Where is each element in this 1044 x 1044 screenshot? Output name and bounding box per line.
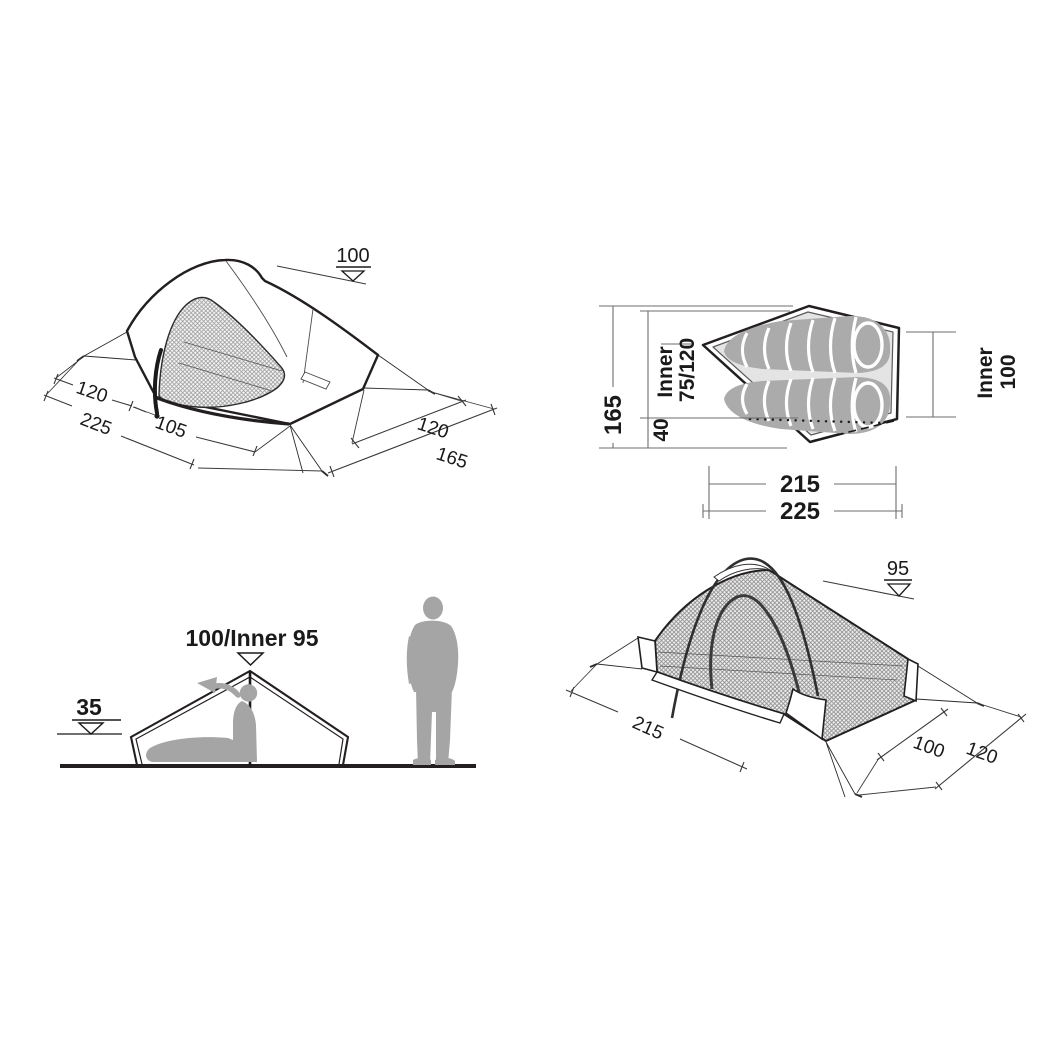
label-inner-length: 215 — [629, 712, 667, 744]
dim-height-95: 95 — [823, 558, 914, 599]
label-outer-height: 100 — [336, 245, 369, 267]
sleeping-bag-top — [724, 316, 890, 373]
label-left-width: 120 — [73, 377, 110, 407]
label-right-length: 165 — [434, 444, 471, 474]
label-plan-vestibule-depth: 40 — [650, 418, 673, 441]
label-door-width: 105 — [152, 412, 189, 443]
label-peak-height: 100/Inner 95 — [186, 625, 319, 651]
view-floor-plan: 165 Inner 75/120 40 Inner 100 215 225 — [599, 306, 1020, 525]
view-side-elevation: 100/Inner 95 35 — [57, 597, 476, 767]
label-plan-total-width: 165 — [600, 395, 627, 435]
dim-height-100: 100 — [277, 245, 371, 284]
label-plan-inner-width-value: 75/120 — [676, 338, 699, 402]
label-total-length: 225 — [77, 409, 114, 440]
view-outer-perspective: 100 120 225 105 120 165 — [44, 245, 497, 477]
diagram-svg: 100 120 225 105 120 165 — [0, 0, 1044, 1044]
inner-tent-mesh-body — [655, 570, 916, 741]
ventilation-arrow — [197, 677, 238, 695]
label-plan-inner-width-word: Inner — [654, 346, 677, 397]
label-inner-height: 95 — [887, 558, 909, 580]
label-plan-total-length: 225 — [780, 498, 820, 525]
peak-marker-triangle — [238, 653, 263, 665]
label-wall-height: 35 — [76, 694, 102, 720]
standing-person-silhouette — [407, 597, 458, 766]
label-right-width: 120 — [415, 414, 452, 444]
label-plan-inner-length: 215 — [780, 471, 820, 498]
dim-wall-height: 35 — [57, 694, 122, 734]
dim-peak-height: 100/Inner 95 — [186, 625, 319, 665]
sleeping-bag-bottom — [724, 377, 890, 434]
label-inner-width: 100 — [910, 732, 947, 763]
wall-marker-triangle — [79, 723, 103, 734]
label-plan-inner-length-word: Inner — [974, 347, 997, 398]
left-end-cap — [638, 637, 657, 672]
view-inner-perspective: 95 215 100 120 — [566, 558, 1026, 797]
label-plan-inner-length-value: 100 — [997, 354, 1020, 389]
label-outer-width: 120 — [963, 738, 1000, 769]
dims-right — [328, 390, 497, 477]
tent-dimension-diagram: 100 120 225 105 120 165 — [0, 0, 1044, 1044]
